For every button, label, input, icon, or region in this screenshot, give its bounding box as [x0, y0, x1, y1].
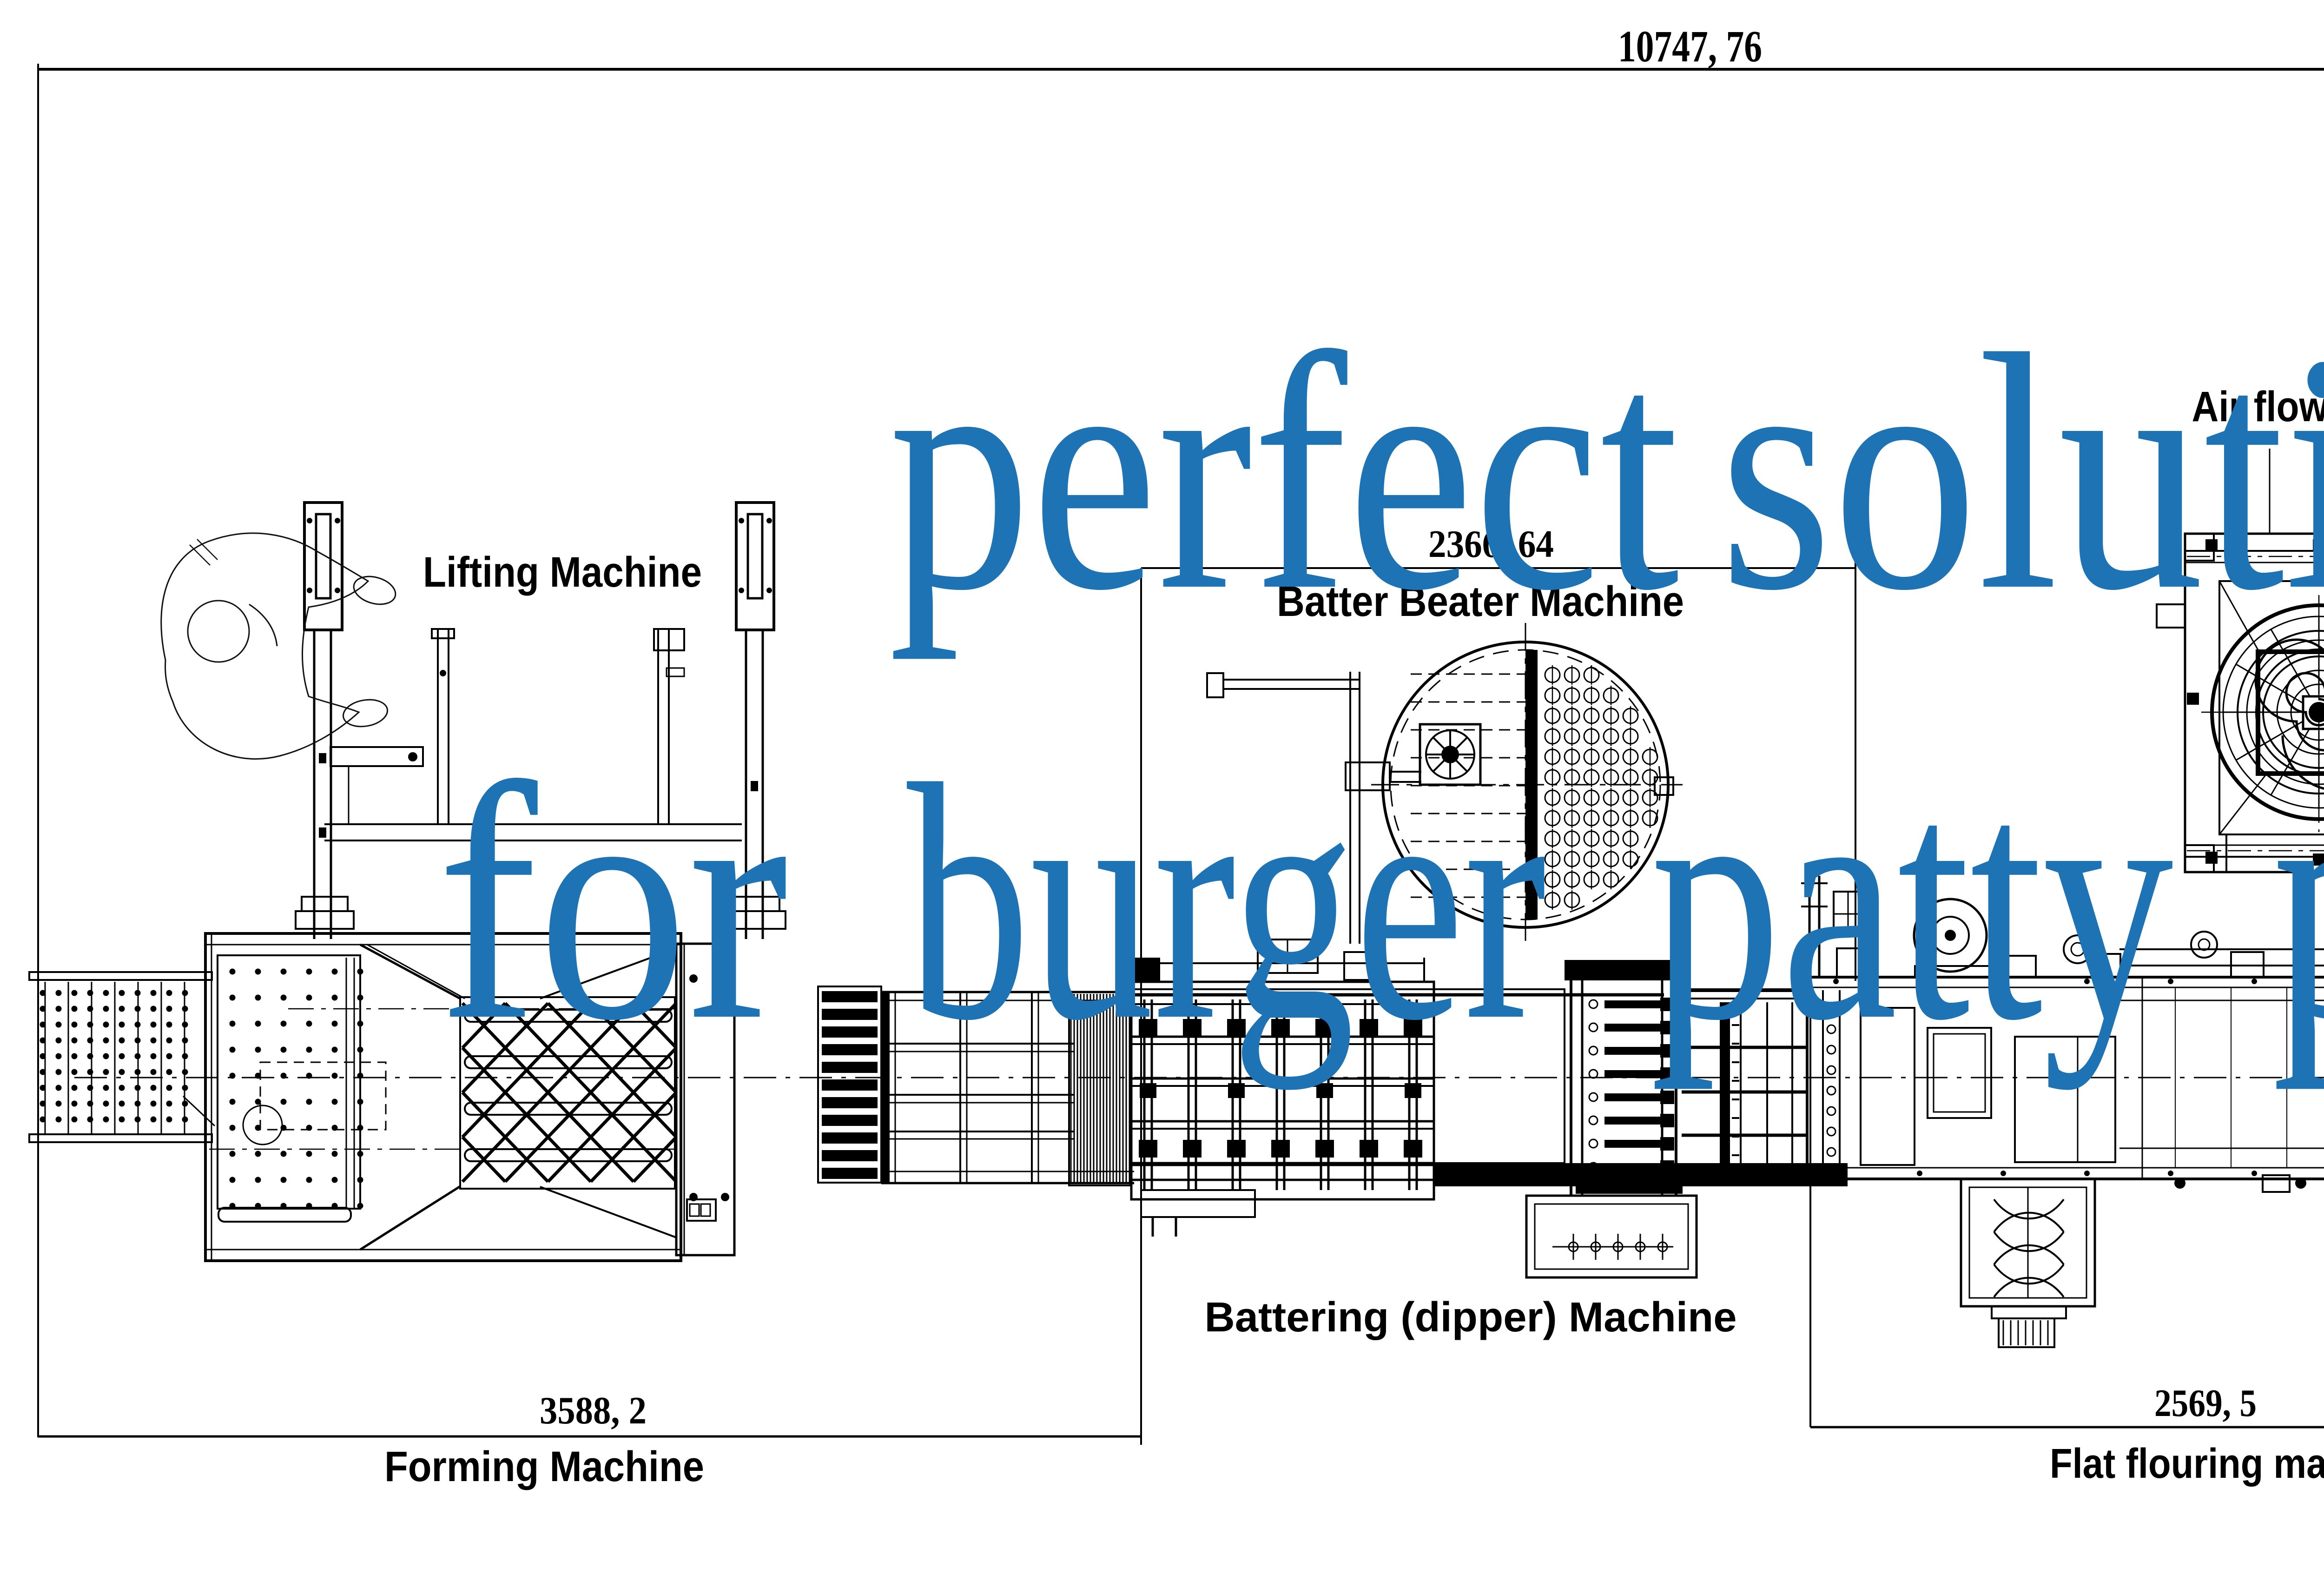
svg-text:for: for — [437, 714, 788, 1090]
svg-text:perfect: perfect — [889, 284, 1680, 661]
svg-text:process: process — [2272, 714, 2324, 1091]
svg-text:10747, 76: 10747, 76 — [1618, 21, 1762, 71]
svg-text:burger: burger — [907, 714, 1546, 1091]
svg-text:Forming Machine: Forming Machine — [384, 1443, 704, 1490]
svg-text:Lifting Machine: Lifting Machine — [423, 549, 702, 596]
svg-text:Battering (dipper) Machine: Battering (dipper) Machine — [1205, 1294, 1737, 1341]
svg-text:patty: patty — [1651, 714, 2173, 1091]
svg-text:Flat flouring machine: Flat flouring machine — [2050, 1441, 2324, 1487]
svg-text:solution: solution — [1719, 284, 2324, 660]
svg-text:3588, 2: 3588, 2 — [540, 1389, 647, 1432]
svg-text:2569, 5: 2569, 5 — [2154, 1382, 2257, 1425]
